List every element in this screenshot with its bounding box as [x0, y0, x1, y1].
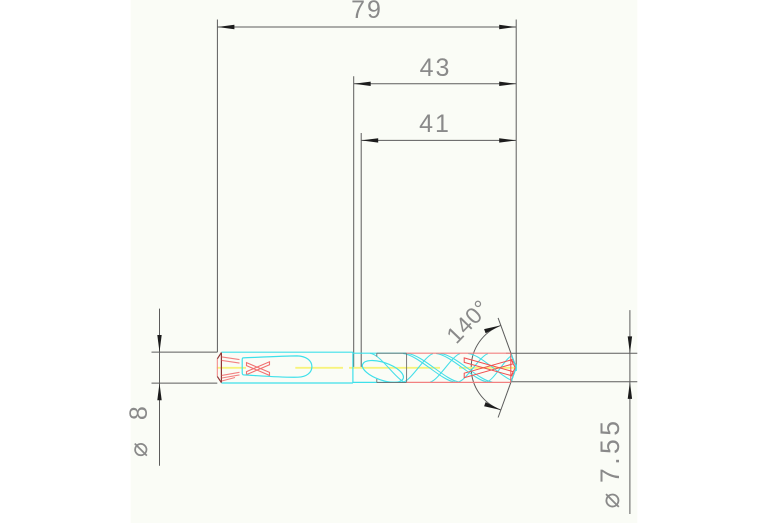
svg-text:79: 79: [351, 0, 383, 24]
svg-text:⌀7.55: ⌀7.55: [595, 417, 625, 508]
svg-text:43: 43: [420, 54, 452, 82]
svg-text:41: 41: [419, 110, 451, 138]
